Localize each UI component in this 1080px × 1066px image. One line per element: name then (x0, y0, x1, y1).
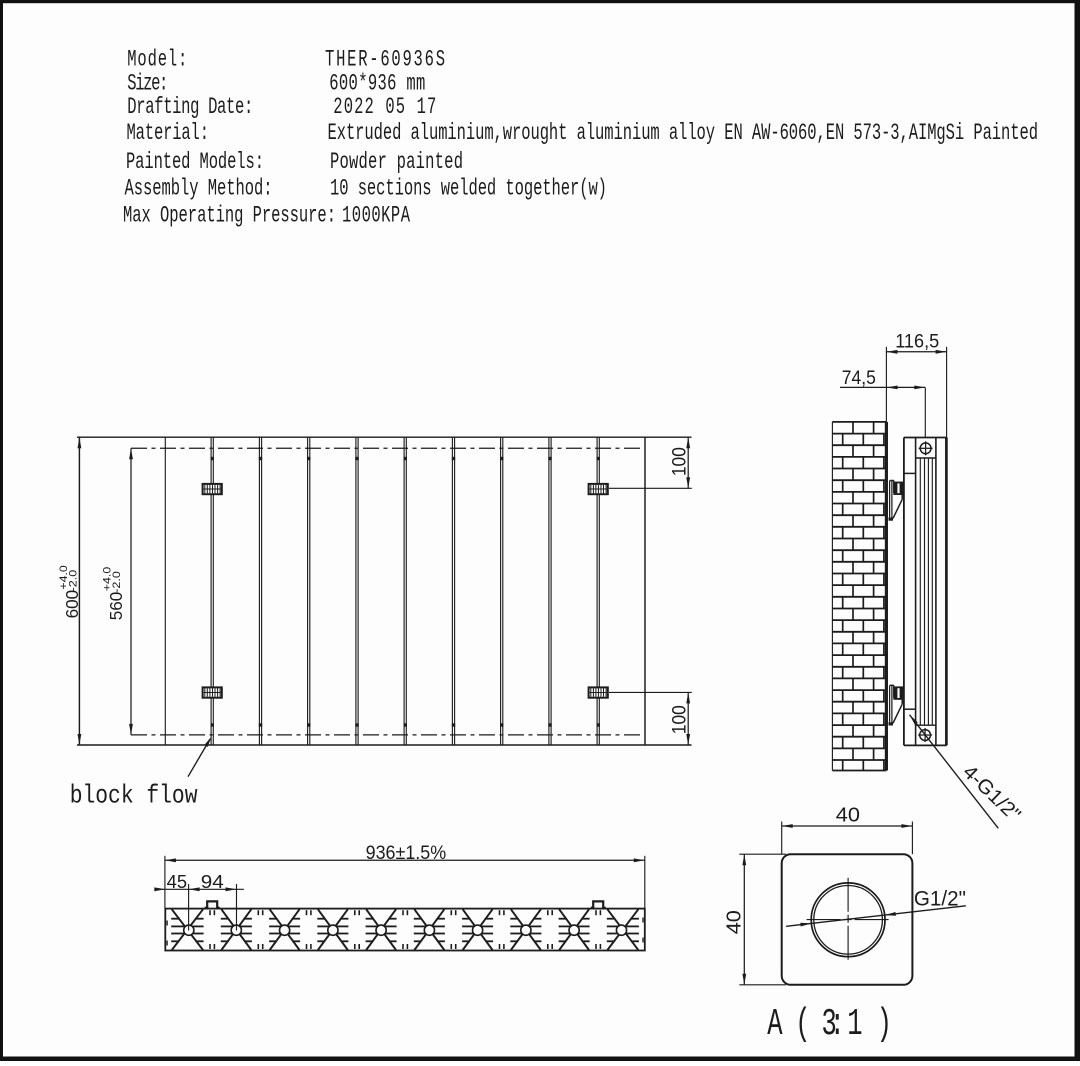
svg-text:(: ( (795, 1002, 810, 1046)
svg-text:40: 40 (836, 805, 860, 827)
svg-text:40: 40 (724, 910, 746, 934)
svg-text:560: 560 (106, 591, 126, 620)
svg-text:94: 94 (201, 872, 224, 892)
svg-text:block flow: block flow (70, 781, 198, 811)
svg-text:Painted Models:: Painted Models: (126, 149, 264, 175)
svg-text:936±1.5%: 936±1.5% (366, 843, 447, 864)
svg-text:Size:: Size: (127, 71, 168, 97)
svg-text::: : (830, 1002, 845, 1046)
svg-text:1000KPA: 1000KPA (342, 203, 410, 229)
svg-text:2022 05 17: 2022 05 17 (333, 94, 436, 120)
svg-text:Drafting Date:: Drafting Date: (127, 94, 253, 120)
svg-text:600*936 mm: 600*936 mm (329, 71, 425, 97)
svg-text:100: 100 (668, 705, 690, 734)
svg-text:A: A (767, 1002, 783, 1046)
svg-text:-2.0: -2.0 (111, 571, 123, 593)
svg-text:Model:: Model: (127, 47, 187, 73)
svg-text:10 sections welded together(w): 10 sections welded together(w) (330, 176, 607, 202)
svg-text:Assembly Method:: Assembly Method: (125, 176, 273, 202)
svg-text:1: 1 (847, 1002, 862, 1046)
svg-text:G1/2": G1/2" (914, 888, 966, 911)
svg-text:Extruded aluminium,wrought alu: Extruded aluminium,wrought aluminium all… (328, 120, 1039, 146)
svg-text:-2.0: -2.0 (68, 570, 80, 592)
svg-text:74,5: 74,5 (842, 368, 876, 389)
svg-text:116,5: 116,5 (895, 332, 939, 353)
svg-text:Powder painted: Powder painted (330, 149, 463, 175)
svg-text:): ) (877, 1002, 892, 1046)
svg-text:Max Operating Pressure:: Max Operating Pressure: (123, 203, 336, 229)
svg-text:45: 45 (167, 872, 187, 892)
svg-text:THER-60936S: THER-60936S (325, 47, 445, 73)
svg-text:100: 100 (668, 447, 690, 476)
svg-text:600: 600 (62, 590, 82, 619)
svg-text:Material:: Material: (127, 120, 210, 146)
